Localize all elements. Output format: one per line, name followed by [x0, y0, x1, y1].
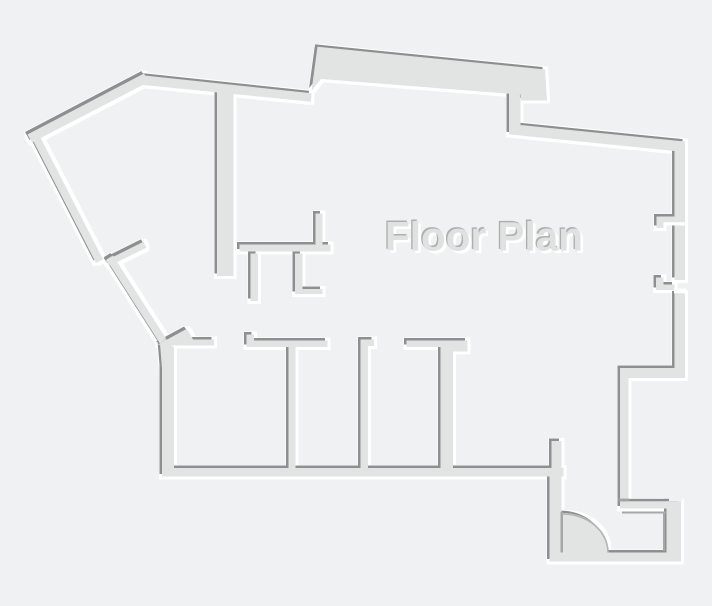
svg-text:Floor Plan: Floor Plan [385, 214, 583, 260]
